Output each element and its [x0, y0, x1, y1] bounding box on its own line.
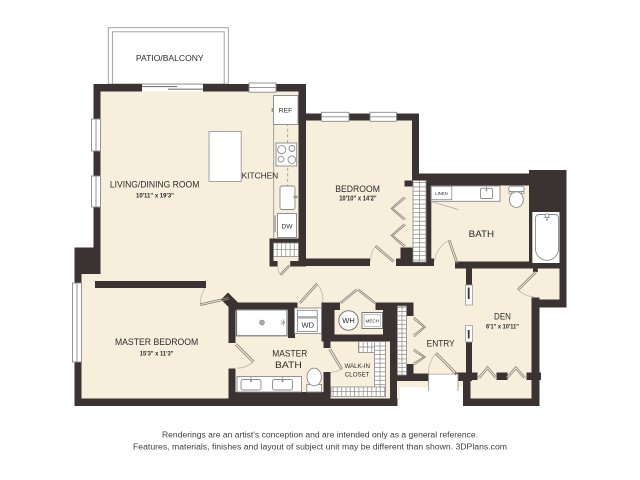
svg-text:MASTER BEDROOM: MASTER BEDROOM: [115, 336, 198, 347]
svg-text:MECH: MECH: [366, 319, 380, 324]
svg-text:LINEN: LINEN: [435, 191, 448, 196]
svg-text:Renderings are an artist's con: Renderings are an artist's conception an…: [162, 431, 478, 440]
svg-text:ENTRY: ENTRY: [427, 338, 455, 348]
svg-text:BATH: BATH: [469, 229, 494, 239]
svg-text:CLOSET: CLOSET: [345, 371, 370, 378]
svg-text:WH: WH: [342, 318, 355, 325]
svg-text:BATH: BATH: [275, 360, 302, 370]
svg-text:LIVING/DINING ROOM: LIVING/DINING ROOM: [110, 179, 200, 190]
svg-text:WD: WD: [302, 321, 315, 330]
svg-text:Features, materials, finishes: Features, materials, finishes and layout…: [133, 443, 507, 452]
svg-text:DEN: DEN: [494, 311, 511, 322]
svg-text:10'11" x 19'3": 10'11" x 19'3": [136, 192, 174, 199]
svg-text:WALK-IN: WALK-IN: [344, 363, 370, 370]
svg-text:MASTER: MASTER: [272, 349, 307, 359]
svg-text:DW: DW: [282, 224, 293, 231]
svg-text:REF: REF: [279, 108, 293, 115]
svg-text:15'3" x 11'3": 15'3" x 11'3": [140, 350, 174, 357]
svg-text:PATIO/BALCONY: PATIO/BALCONY: [136, 53, 204, 63]
svg-text:KITCHEN: KITCHEN: [242, 172, 279, 181]
svg-text:6'1" x 10'11": 6'1" x 10'11": [486, 324, 519, 331]
svg-text:10'10" x 14'2": 10'10" x 14'2": [339, 193, 376, 202]
